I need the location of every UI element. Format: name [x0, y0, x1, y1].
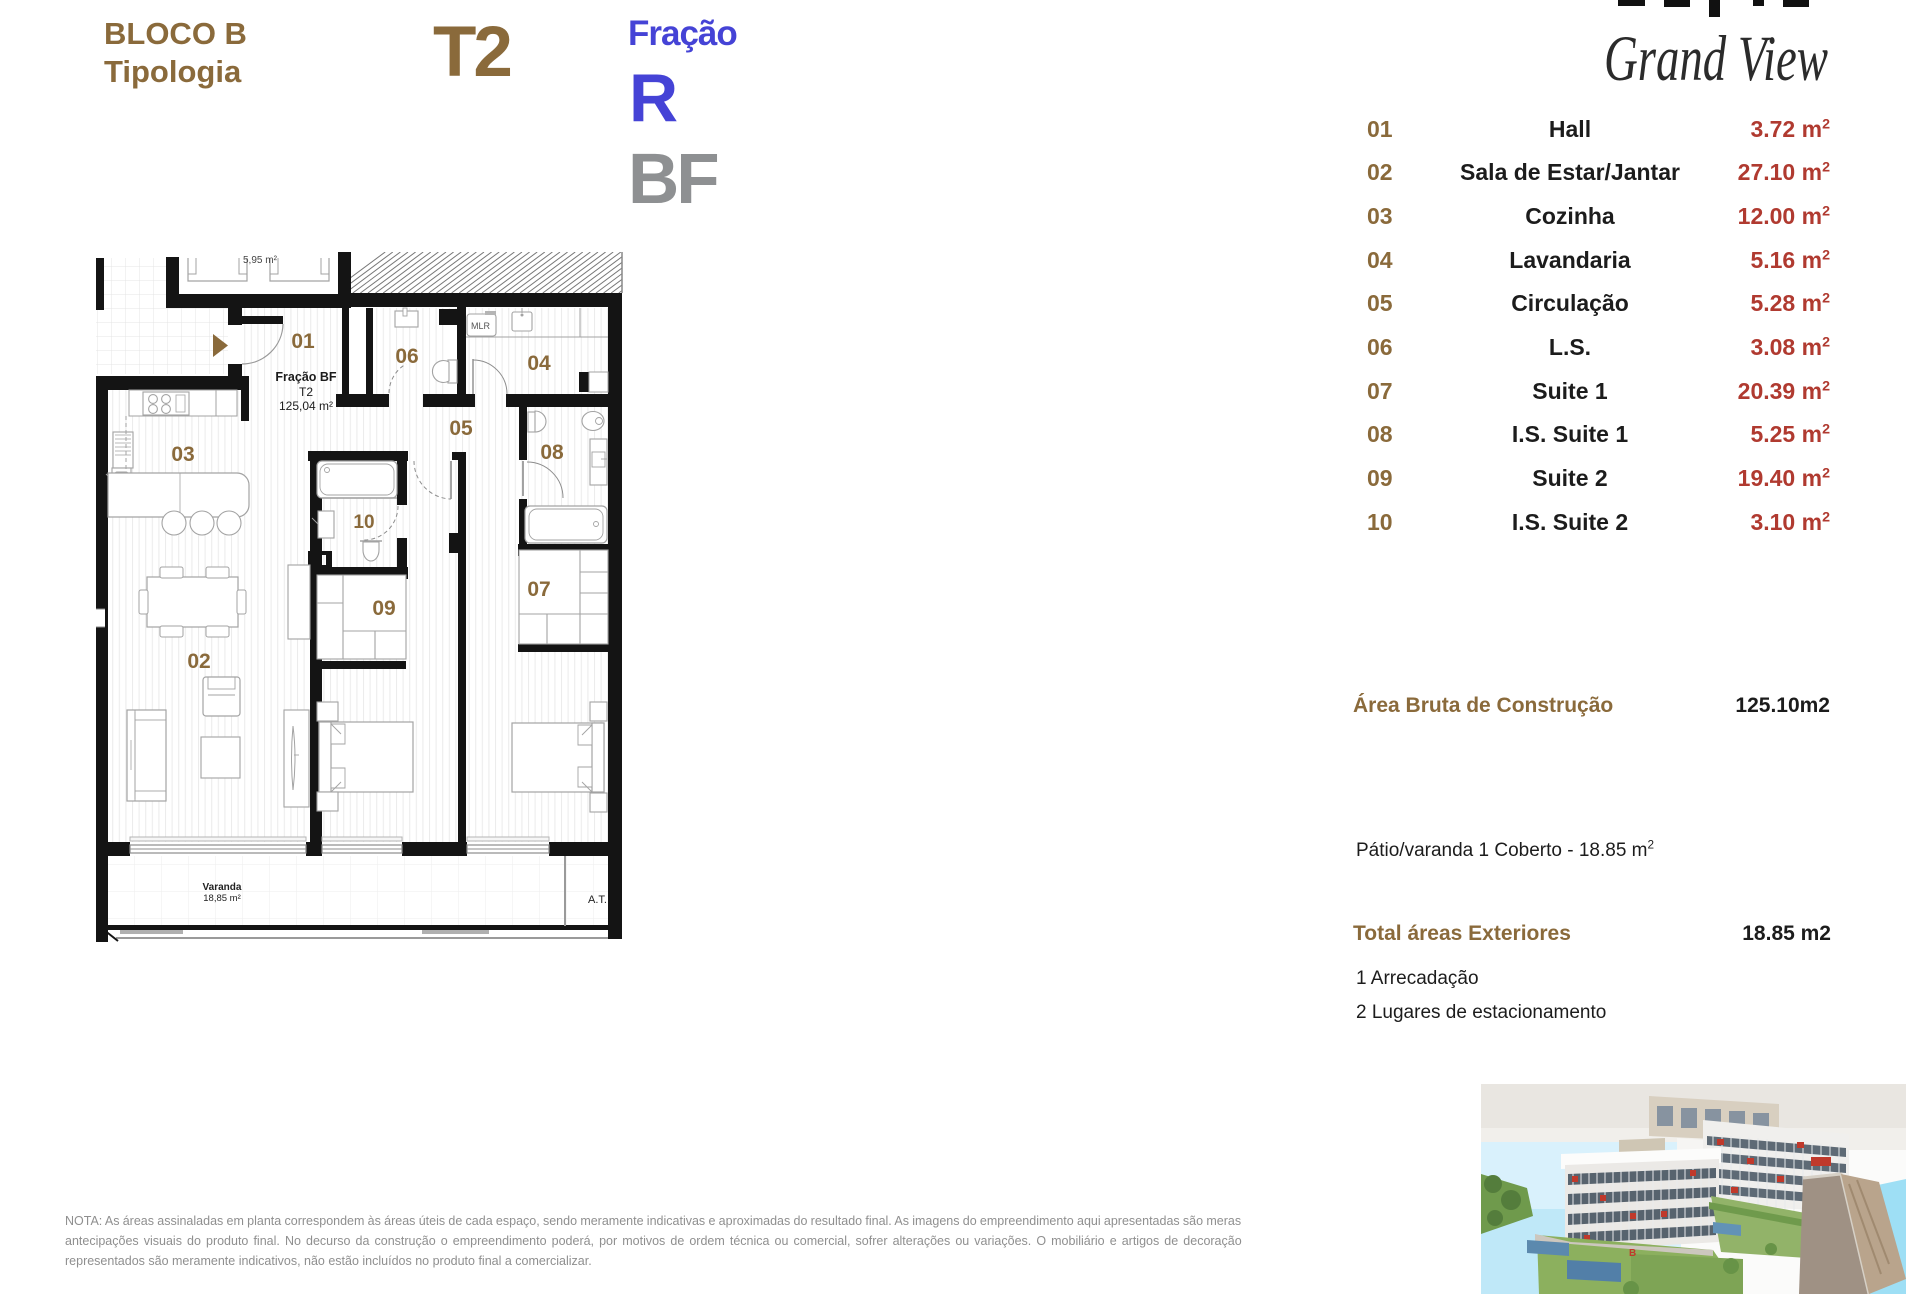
svg-text:08: 08 [540, 441, 564, 464]
svg-text:02: 02 [187, 650, 210, 673]
svg-text:07: 07 [527, 578, 550, 601]
svg-text:T2: T2 [299, 385, 313, 399]
svg-text:03: 03 [171, 443, 194, 466]
svg-text:18,85 m²: 18,85 m² [203, 893, 241, 904]
svg-text:125,04 m²: 125,04 m² [279, 399, 333, 413]
svg-text:MLR: MLR [471, 321, 491, 331]
svg-text:04: 04 [527, 352, 551, 375]
svg-text:5,95 m²: 5,95 m² [243, 255, 278, 266]
svg-text:10: 10 [353, 512, 374, 533]
svg-text:Fração BF: Fração BF [275, 370, 336, 384]
svg-text:B: B [1629, 1248, 1636, 1259]
svg-text:01: 01 [291, 330, 315, 353]
svg-text:06: 06 [395, 345, 418, 368]
svg-text:05: 05 [449, 417, 473, 440]
svg-text:A.T.: A.T. [588, 894, 607, 906]
svg-text:Varanda: Varanda [203, 882, 242, 893]
svg-text:09: 09 [372, 597, 395, 620]
